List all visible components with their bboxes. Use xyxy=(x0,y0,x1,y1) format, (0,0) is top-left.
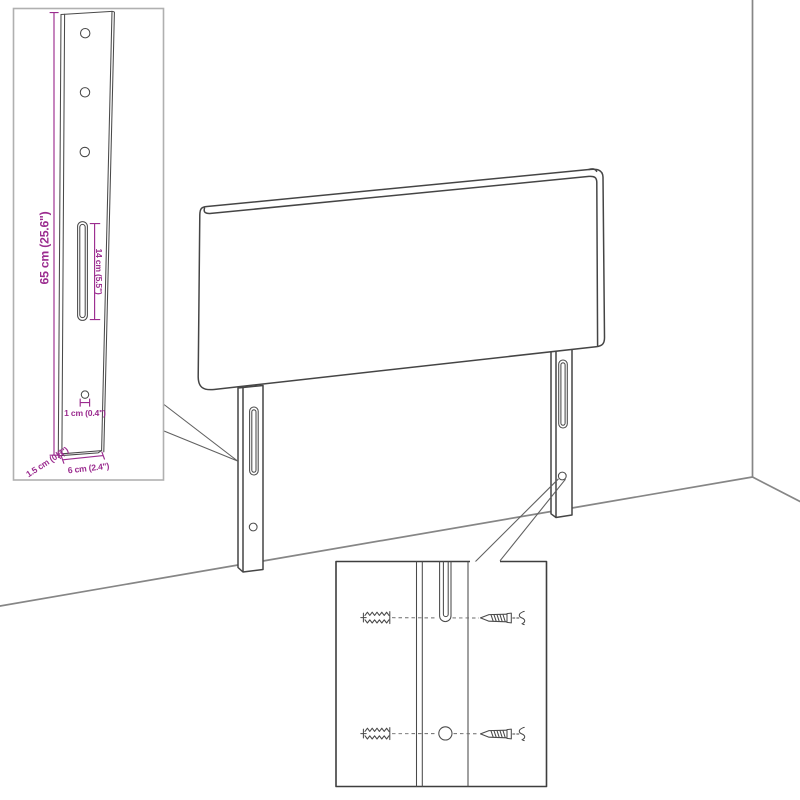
dimension-hole-diameter: 1 cm (0.4") xyxy=(64,408,106,418)
leg-detail-inset: 65 cm (25.6") 14 cm (5.5") 1 cm (0.4") 1… xyxy=(14,9,164,481)
headboard-left-leg xyxy=(238,386,263,573)
leader-to-left-leg xyxy=(164,405,238,462)
mounting-detail-frame xyxy=(336,562,547,787)
headboard-panel xyxy=(198,169,604,390)
leader-lines xyxy=(164,405,566,563)
headboard-right-leg xyxy=(551,346,572,518)
screenshot-stage: 65 cm (25.6") 14 cm (5.5") 1 cm (0.4") 1… xyxy=(0,0,800,800)
mounting-detail-inset xyxy=(336,562,547,787)
headboard-drawing xyxy=(198,169,604,572)
floor-line-right xyxy=(753,477,800,502)
diagram-canvas: 65 cm (25.6") 14 cm (5.5") 1 cm (0.4") 1… xyxy=(0,0,800,800)
dimension-slot-length: 14 cm (5.5") xyxy=(94,248,104,294)
dimension-leg-height: 65 cm (25.6") xyxy=(38,211,52,284)
